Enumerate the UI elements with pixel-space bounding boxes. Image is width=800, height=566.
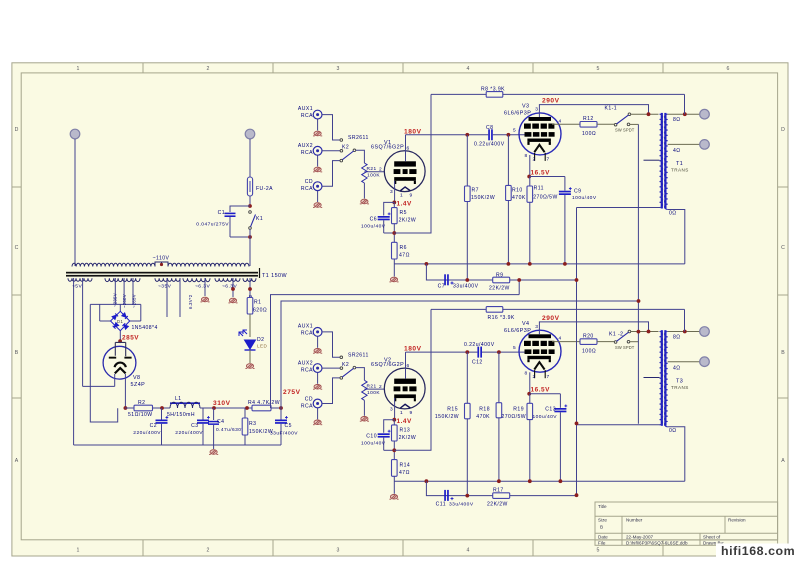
svg-text:C3: C3 bbox=[191, 423, 198, 429]
svg-text:T1 150W: T1 150W bbox=[262, 273, 287, 279]
svg-text:~6.3V: ~6.3V bbox=[195, 284, 210, 290]
svg-text:K1 -2: K1 -2 bbox=[609, 332, 623, 338]
svg-text:CD: CD bbox=[305, 179, 313, 185]
svg-text:R10: R10 bbox=[512, 188, 523, 194]
svg-text:5: 5 bbox=[513, 345, 516, 351]
svg-text:2K/2W: 2K/2W bbox=[399, 435, 417, 441]
svg-text:RCA: RCA bbox=[301, 330, 313, 336]
svg-text:150K/2W: 150K/2W bbox=[435, 414, 459, 420]
svg-text:File: File bbox=[598, 541, 606, 546]
svg-text:3: 3 bbox=[390, 406, 393, 412]
svg-text:R21: R21 bbox=[367, 166, 377, 172]
svg-text:R12: R12 bbox=[583, 116, 594, 122]
svg-text:6SQ7/6G2P: 6SQ7/6G2P bbox=[371, 145, 404, 151]
svg-text:RCA: RCA bbox=[301, 150, 313, 156]
svg-text:2: 2 bbox=[207, 66, 210, 72]
svg-text:2K/2W: 2K/2W bbox=[399, 218, 417, 224]
svg-text:C1: C1 bbox=[218, 210, 225, 216]
svg-text:Revision: Revision bbox=[728, 518, 746, 523]
svg-text:285V: 285V bbox=[122, 335, 139, 342]
svg-text:C13: C13 bbox=[545, 407, 556, 413]
svg-text:0.47u/630V: 0.47u/630V bbox=[216, 427, 245, 433]
svg-text:TRANS: TRANS bbox=[671, 168, 689, 173]
svg-text:SR2611: SR2611 bbox=[348, 352, 369, 358]
svg-text:R17: R17 bbox=[493, 487, 504, 493]
svg-text:270Ω/5W: 270Ω/5W bbox=[533, 194, 558, 200]
svg-text:D2: D2 bbox=[257, 337, 264, 343]
svg-text:TRANS: TRANS bbox=[671, 385, 689, 390]
svg-text:C4: C4 bbox=[217, 419, 224, 425]
svg-text:T1: T1 bbox=[676, 161, 683, 167]
svg-text:B: B bbox=[600, 525, 603, 530]
svg-text:Size: Size bbox=[598, 518, 607, 523]
svg-text:R16 *3.9K: R16 *3.9K bbox=[488, 315, 515, 321]
svg-text:100u/40V: 100u/40V bbox=[572, 195, 597, 201]
svg-text:1: 1 bbox=[77, 66, 80, 72]
svg-text:7: 7 bbox=[547, 157, 550, 163]
svg-text:22K/2W: 22K/2W bbox=[487, 501, 508, 507]
svg-text:SW SPDT: SW SPDT bbox=[615, 128, 635, 133]
svg-text:A: A bbox=[781, 458, 785, 464]
svg-text:3: 3 bbox=[390, 189, 393, 195]
svg-text:D:\hifi\6P3P\6SQ7-6L6SE.ddb: D:\hifi\6P3P\6SQ7-6L6SE.ddb bbox=[626, 541, 688, 546]
svg-text:~35V: ~35V bbox=[158, 284, 172, 290]
svg-text:B: B bbox=[15, 350, 19, 356]
svg-text:2: 2 bbox=[207, 548, 210, 554]
svg-text:16.5V: 16.5V bbox=[531, 169, 551, 176]
svg-text:~235V: ~235V bbox=[113, 293, 118, 307]
svg-text:3: 3 bbox=[535, 324, 538, 330]
svg-text:22K/2W: 22K/2W bbox=[489, 285, 510, 291]
svg-text:R21: R21 bbox=[367, 383, 377, 389]
svg-text:310V: 310V bbox=[213, 400, 231, 407]
svg-text:R1: R1 bbox=[254, 300, 261, 306]
svg-text:4: 4 bbox=[559, 336, 562, 342]
svg-text:Title: Title bbox=[598, 504, 607, 509]
svg-text:C: C bbox=[781, 245, 785, 251]
svg-text:AUX2: AUX2 bbox=[298, 143, 313, 149]
svg-text:L1: L1 bbox=[175, 396, 182, 402]
svg-text:9: 9 bbox=[410, 193, 413, 199]
svg-text:8Ω: 8Ω bbox=[673, 117, 681, 123]
svg-text:V8: V8 bbox=[133, 375, 141, 381]
svg-text:~265V: ~265V bbox=[132, 294, 137, 308]
svg-text:R15: R15 bbox=[447, 407, 458, 413]
svg-text:D1: D1 bbox=[117, 319, 123, 324]
svg-text:47Ω: 47Ω bbox=[399, 470, 410, 476]
svg-text:33u/400V: 33u/400V bbox=[453, 284, 479, 290]
svg-text:4: 4 bbox=[467, 66, 470, 72]
svg-text:100Ω: 100Ω bbox=[582, 131, 596, 137]
svg-text:2: 2 bbox=[379, 167, 382, 173]
svg-text:270Ω/5W: 270Ω/5W bbox=[501, 414, 526, 420]
svg-text:47Ω: 47Ω bbox=[399, 253, 410, 259]
svg-text:SR2611: SR2611 bbox=[348, 135, 369, 141]
svg-text:100Ω: 100Ω bbox=[582, 348, 596, 354]
svg-text:RCA: RCA bbox=[301, 403, 313, 409]
svg-text:C: C bbox=[15, 245, 19, 251]
svg-text:1.4V: 1.4V bbox=[397, 201, 413, 208]
svg-text:AUX1: AUX1 bbox=[298, 106, 313, 112]
svg-text:Number: Number bbox=[626, 518, 643, 523]
svg-text:R7: R7 bbox=[472, 188, 479, 194]
svg-text:R2: R2 bbox=[138, 400, 145, 406]
svg-text:D: D bbox=[15, 127, 19, 133]
svg-text:A: A bbox=[15, 458, 19, 464]
svg-text:C12: C12 bbox=[472, 360, 483, 366]
svg-text:0.22u/400V: 0.22u/400V bbox=[464, 342, 495, 348]
svg-text:K2: K2 bbox=[342, 362, 349, 368]
svg-text:33uF/400V: 33uF/400V bbox=[270, 431, 298, 437]
svg-text:100u/40V: 100u/40V bbox=[532, 414, 557, 420]
svg-text:620Ω: 620Ω bbox=[253, 308, 267, 314]
svg-text:6: 6 bbox=[407, 146, 410, 152]
svg-text:R8 *3.9K: R8 *3.9K bbox=[481, 87, 505, 93]
svg-text:RCA: RCA bbox=[301, 367, 313, 373]
svg-text:22-May-2007: 22-May-2007 bbox=[626, 535, 654, 540]
svg-text:150K/2W: 150K/2W bbox=[471, 195, 495, 201]
svg-text:5Z4P: 5Z4P bbox=[131, 382, 146, 388]
svg-text:0.047u/275V: 0.047u/275V bbox=[196, 222, 229, 228]
svg-text:1: 1 bbox=[77, 548, 80, 554]
svg-text:K1-1: K1-1 bbox=[605, 106, 618, 112]
svg-text:Date: Date bbox=[598, 535, 608, 540]
svg-text:C8: C8 bbox=[486, 125, 493, 131]
svg-text:T3: T3 bbox=[676, 378, 683, 384]
svg-text:6SQ7/6G2P: 6SQ7/6G2P bbox=[371, 362, 404, 368]
svg-text:100K: 100K bbox=[367, 390, 380, 396]
svg-text:K2: K2 bbox=[342, 145, 349, 151]
svg-text:R4 4.7K/2W: R4 4.7K/2W bbox=[248, 400, 280, 406]
svg-text:33u/400V: 33u/400V bbox=[449, 502, 474, 508]
svg-text:R18: R18 bbox=[479, 407, 490, 413]
svg-text:RCA: RCA bbox=[301, 113, 313, 119]
svg-text:~5V: ~5V bbox=[72, 284, 82, 290]
svg-text:CD: CD bbox=[305, 396, 313, 402]
svg-text:R13: R13 bbox=[400, 427, 411, 433]
svg-text:R9: R9 bbox=[496, 273, 503, 279]
svg-text:Sheet of: Sheet of bbox=[703, 535, 721, 540]
svg-text:4: 4 bbox=[467, 548, 470, 554]
svg-text:220u/400V: 220u/400V bbox=[133, 430, 161, 436]
svg-text:3: 3 bbox=[337, 66, 340, 72]
svg-text:275V: 275V bbox=[283, 389, 301, 396]
svg-text:R3: R3 bbox=[249, 421, 256, 427]
svg-text:~110V: ~110V bbox=[153, 256, 170, 262]
svg-text:1: 1 bbox=[400, 193, 403, 199]
svg-text:AUX2: AUX2 bbox=[298, 360, 313, 366]
svg-text:5: 5 bbox=[597, 548, 600, 554]
svg-text:V4: V4 bbox=[522, 321, 530, 327]
svg-text:0Ω: 0Ω bbox=[669, 428, 677, 434]
svg-text:100K: 100K bbox=[367, 173, 380, 179]
svg-text:4: 4 bbox=[559, 118, 562, 124]
svg-text:~6.3V: ~6.3V bbox=[222, 284, 237, 290]
svg-text:SW SPDT: SW SPDT bbox=[615, 345, 635, 350]
svg-text:6L6/6P3P: 6L6/6P3P bbox=[504, 111, 531, 117]
svg-text:7: 7 bbox=[547, 374, 550, 380]
svg-text:5: 5 bbox=[597, 66, 600, 72]
svg-text:9: 9 bbox=[410, 410, 413, 416]
svg-text:0Ω: 0Ω bbox=[669, 211, 677, 217]
svg-text:6L6/6P3P: 6L6/6P3P bbox=[504, 328, 531, 334]
svg-text:R5: R5 bbox=[400, 210, 407, 216]
svg-text:2: 2 bbox=[533, 374, 536, 380]
svg-text:K1: K1 bbox=[256, 216, 263, 222]
svg-text:100u/40V: 100u/40V bbox=[361, 441, 386, 447]
svg-text:290V: 290V bbox=[542, 98, 560, 105]
svg-text:C11: C11 bbox=[436, 502, 446, 508]
svg-text:2: 2 bbox=[533, 157, 536, 163]
svg-text:C5: C5 bbox=[285, 423, 292, 429]
svg-text:6: 6 bbox=[727, 66, 730, 72]
svg-text:180V: 180V bbox=[404, 128, 422, 135]
svg-text:0.22u/400V: 0.22u/400V bbox=[474, 141, 505, 147]
svg-text:8: 8 bbox=[525, 153, 528, 159]
svg-text:3: 3 bbox=[535, 107, 538, 113]
svg-text:FU-2A: FU-2A bbox=[256, 186, 273, 192]
svg-text:6: 6 bbox=[407, 363, 410, 369]
svg-text:3: 3 bbox=[337, 548, 340, 554]
svg-text:B: B bbox=[781, 350, 785, 356]
svg-text:C7: C7 bbox=[438, 284, 445, 290]
svg-text:4Ω: 4Ω bbox=[673, 148, 681, 154]
svg-text:1N5408*4: 1N5408*4 bbox=[132, 325, 158, 331]
svg-text:hifi168.com: hifi168.com bbox=[721, 544, 795, 558]
svg-text:R14: R14 bbox=[400, 462, 411, 468]
svg-text:470K: 470K bbox=[476, 414, 490, 420]
svg-text:5: 5 bbox=[513, 128, 516, 134]
svg-text:470K: 470K bbox=[512, 195, 526, 201]
svg-text:100u/40V: 100u/40V bbox=[361, 223, 386, 229]
svg-text:C10: C10 bbox=[366, 434, 377, 440]
svg-text:AUX1: AUX1 bbox=[298, 323, 313, 329]
svg-text:C6: C6 bbox=[370, 216, 377, 222]
svg-text:LED: LED bbox=[257, 344, 268, 349]
svg-text:8Ω: 8Ω bbox=[673, 334, 681, 340]
svg-text:R20: R20 bbox=[583, 333, 594, 339]
svg-text:2: 2 bbox=[379, 384, 382, 390]
svg-text:8: 8 bbox=[525, 370, 528, 376]
svg-text:R11: R11 bbox=[534, 186, 544, 192]
svg-text:220u/400V: 220u/400V bbox=[175, 430, 203, 436]
svg-text:4Ω: 4Ω bbox=[673, 365, 681, 371]
svg-text:1.4V: 1.4V bbox=[397, 418, 413, 425]
svg-text:R6: R6 bbox=[400, 245, 407, 251]
svg-text:R19: R19 bbox=[513, 407, 524, 413]
svg-text:290V: 290V bbox=[542, 315, 560, 322]
svg-text:180V: 180V bbox=[404, 346, 422, 353]
svg-text:C2: C2 bbox=[150, 423, 157, 429]
svg-text:6.3V*2: 6.3V*2 bbox=[188, 294, 193, 309]
svg-text:5H/150mH: 5H/150mH bbox=[167, 412, 195, 418]
svg-text:C9: C9 bbox=[574, 188, 581, 194]
svg-text:D: D bbox=[781, 127, 785, 133]
svg-text:1: 1 bbox=[400, 410, 403, 416]
svg-text:RCA: RCA bbox=[301, 186, 313, 192]
svg-text:V3: V3 bbox=[522, 104, 530, 110]
svg-text:~260V: ~260V bbox=[122, 294, 127, 308]
svg-text:16.5V: 16.5V bbox=[531, 387, 551, 394]
svg-text:51Ω/10W: 51Ω/10W bbox=[128, 412, 153, 418]
